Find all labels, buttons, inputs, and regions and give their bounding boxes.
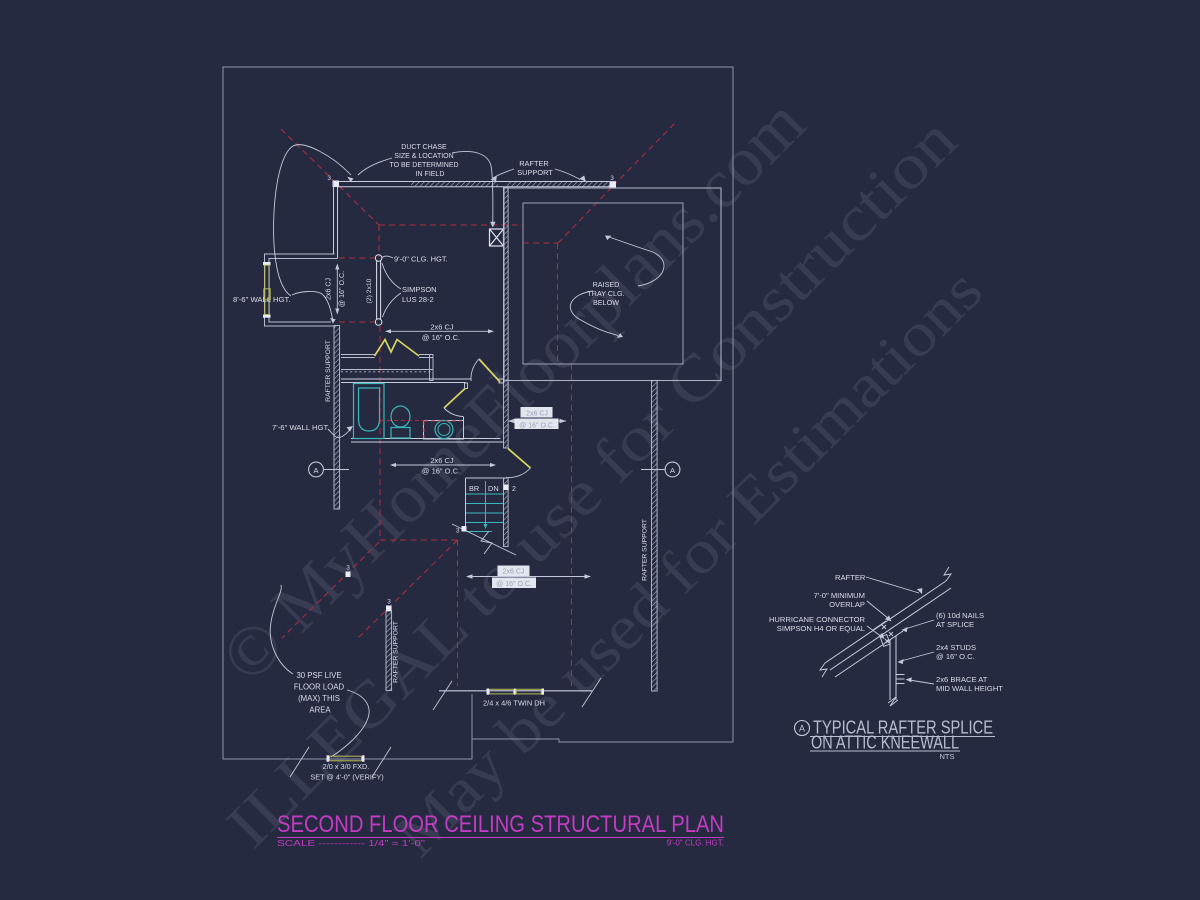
svg-text:2: 2 [512,486,516,493]
svg-text:FLOOR LOAD: FLOOR LOAD [294,683,345,692]
svg-text:9'-0" CLG. HGT.: 9'-0" CLG. HGT. [667,839,724,848]
svg-text:30 PSF LIVE: 30 PSF LIVE [296,671,341,680]
svg-text:@ 16" O.C.: @ 16" O.C. [519,423,555,430]
svg-text:BR: BR [469,484,479,493]
svg-text:2x6 CJ: 2x6 CJ [503,569,525,576]
svg-text:RAFTER SUPPORT: RAFTER SUPPORT [393,621,400,683]
svg-text:TRAY CLG.: TRAY CLG. [587,289,624,298]
svg-text:SIMPSON H4 OR EQUAL: SIMPSON H4 OR EQUAL [777,624,865,633]
svg-text:3: 3 [327,175,331,182]
svg-text:HURRICANE CONNECTOR: HURRICANE CONNECTOR [769,615,866,624]
svg-text:RAFTER SUPPORT: RAFTER SUPPORT [325,340,332,402]
svg-text:BELOW: BELOW [593,298,619,307]
svg-text:7'-6" WALL HGT.: 7'-6" WALL HGT. [272,423,329,432]
svg-text:RAISED: RAISED [593,280,620,289]
svg-text:NTS: NTS [940,752,955,761]
svg-text:@ 16" O.C.: @ 16" O.C. [422,333,460,342]
svg-text:AREA: AREA [309,706,331,715]
svg-text:@ 16" O.C.: @ 16" O.C. [338,271,346,307]
svg-text:RAFTER SUPPORT: RAFTER SUPPORT [642,519,649,581]
svg-text:SET @ 4'-0" (VERIFY): SET @ 4'-0" (VERIFY) [310,773,383,782]
svg-text:@ 16" O.C.: @ 16" O.C. [422,467,460,476]
svg-text:MID WALL HEIGHT: MID WALL HEIGHT [936,684,1003,693]
svg-text:2x6 CJ: 2x6 CJ [430,456,454,465]
svg-text:3: 3 [346,565,350,572]
svg-text:RAFTER: RAFTER [835,573,866,582]
svg-text:2/0 x 3/0 FXD.: 2/0 x 3/0 FXD. [323,762,370,771]
svg-text:RAFTER: RAFTER [519,159,549,168]
svg-text:SIZE & LOCATION: SIZE & LOCATION [394,153,453,160]
svg-text:@ 16" O.C.: @ 16" O.C. [936,652,975,661]
svg-text:3: 3 [387,599,391,606]
svg-text:@ 16" O.C.: @ 16" O.C. [496,581,532,588]
svg-text:TO BE DETERMINED: TO BE DETERMINED [389,162,458,169]
svg-text:LUS 28-2: LUS 28-2 [402,295,434,304]
svg-text:SIMPSON: SIMPSON [402,285,437,294]
svg-text:8'-6" WALL HGT.: 8'-6" WALL HGT. [233,295,290,304]
svg-text:2x6 CJ: 2x6 CJ [430,323,454,332]
svg-text:2x6 BRACE AT: 2x6 BRACE AT [936,675,988,684]
svg-text:IN FIELD: IN FIELD [416,171,445,178]
svg-text:SCALE ------------ 1/4" = 1'-0: SCALE ------------ 1/4" = 1'-0" [277,839,425,848]
svg-text:ON ATTIC KNEEWALL: ON ATTIC KNEEWALL [811,732,959,753]
svg-text:3: 3 [456,528,460,535]
svg-text:(2) 2x10: (2) 2x10 [366,278,373,303]
svg-text:OVERLAP: OVERLAP [829,600,865,609]
svg-text:9'-0" CLG. HGT.: 9'-0" CLG. HGT. [394,255,448,264]
svg-text:DUCT CHASE: DUCT CHASE [401,144,447,151]
svg-text:A: A [670,466,675,475]
svg-text:7'-0" MINIMUM: 7'-0" MINIMUM [814,591,865,600]
svg-text:A: A [313,466,318,475]
svg-text:2x6 CJ: 2x6 CJ [526,411,548,418]
svg-text:(6) 10d NAILS: (6) 10d NAILS [936,611,984,620]
svg-text:2x4 STUDS: 2x4 STUDS [936,643,976,652]
svg-text:3: 3 [610,175,614,182]
svg-text:SUPPORT: SUPPORT [517,168,553,177]
svg-text:A: A [799,724,805,734]
svg-text:2/4 x 4/6 TWIN DH: 2/4 x 4/6 TWIN DH [483,699,545,708]
svg-text:AT SPLICE: AT SPLICE [936,620,974,629]
svg-text:2x6 CJ: 2x6 CJ [325,278,333,301]
svg-text:(MAX) THIS: (MAX) THIS [298,694,340,703]
svg-text:DN: DN [488,484,499,493]
svg-text:SECOND FLOOR CEILING STRUCTURA: SECOND FLOOR CEILING STRUCTURAL PLAN [277,811,724,838]
